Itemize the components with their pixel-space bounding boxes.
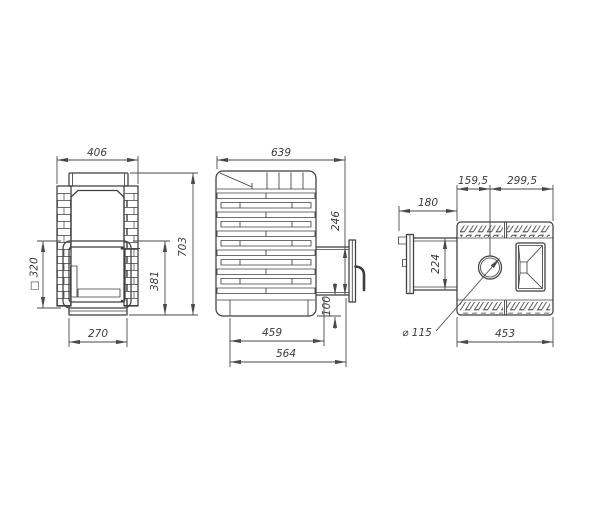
door-ref-dot-bottom — [121, 300, 124, 303]
door-handle-side — [356, 267, 365, 291]
dim-door-opening-height: 246 — [330, 211, 342, 231]
dim-door-bottom-to-base: 100 — [321, 296, 333, 316]
front-view — [57, 173, 138, 315]
dim-front-overall-height: 703 — [177, 237, 189, 257]
front-plinth — [69, 306, 127, 315]
top-band-hatch-1 — [460, 226, 503, 238]
chimney-opening-outer — [479, 256, 502, 279]
technical-drawing-canvas: 406 703 381 □ 320 270 — [0, 0, 600, 514]
top-band-hatch-3 — [460, 302, 503, 314]
dim-max-depth: 564 — [276, 348, 296, 360]
dim-body-width: 453 — [495, 328, 515, 340]
top-band-hatch-4 — [507, 302, 550, 314]
stove-three-view-drawing: 406 703 381 □ 320 270 — [0, 0, 600, 514]
side-view — [216, 171, 364, 316]
dim-door-size: □ 320 — [29, 257, 41, 291]
chimney-opening-inner — [481, 258, 500, 277]
side-plinth — [217, 300, 315, 316]
dim-overall-depth: 639 — [271, 147, 291, 159]
dim-base-width: 270 — [88, 328, 108, 340]
side-convection-slats — [217, 193, 315, 294]
stone-funnel — [516, 243, 545, 291]
front-center-panel — [71, 191, 124, 242]
dim-chimney-to-back: 299,5 — [507, 175, 537, 187]
dim-base-depth: 459 — [262, 327, 282, 339]
side-top-section-detail — [220, 173, 303, 190]
dim-front-overall-width: 406 — [87, 147, 107, 159]
top-band-hatch-2 — [507, 226, 550, 238]
fire-door-frame — [63, 241, 131, 308]
top-view — [399, 222, 554, 315]
top-band-seams — [505, 222, 507, 315]
door-tunnel-inner-lines — [316, 250, 349, 293]
dim-tunnel-width: 224 — [430, 254, 442, 274]
front-top-band-posts — [73, 173, 125, 186]
top-view-dimensions: 159,5 299,5 180 224 453 ⌀ 115 — [399, 175, 553, 347]
door-ref-dot-top — [121, 247, 124, 250]
dim-chimney-to-front: 159,5 — [458, 175, 488, 187]
door-handle-plan — [399, 237, 407, 244]
front-top-band — [69, 173, 128, 186]
door-tunnel — [316, 247, 349, 295]
dim-door-frame-height: 381 — [149, 271, 161, 291]
dim-chimney-diameter: ⌀ 115 — [402, 327, 432, 339]
dim-tunnel-length: 180 — [418, 197, 438, 209]
door-bottom-grate-hatch — [78, 289, 120, 297]
